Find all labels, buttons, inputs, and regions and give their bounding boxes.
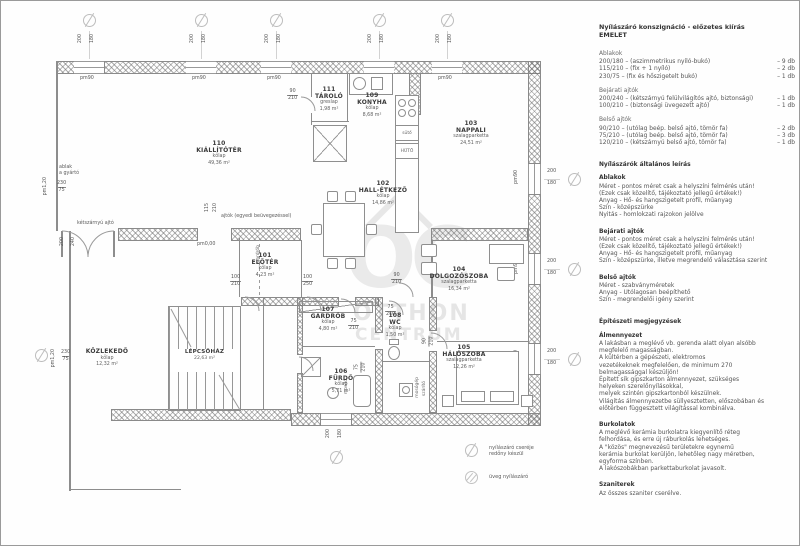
wall-segment	[528, 194, 541, 254]
sink-drainer	[371, 77, 383, 90]
dim-fraction: 23075	[57, 181, 66, 193]
notes-section-ceiling: Álmennyezet A lakásban a meglévő vb. ger…	[599, 333, 795, 413]
level-label: pm0,00	[197, 242, 215, 247]
dim-fraction: 23075	[61, 350, 70, 362]
dim-label: 200	[265, 34, 270, 43]
dim-line	[544, 179, 560, 180]
parapet-label: pm1,20	[43, 177, 48, 195]
floor-plan: OC OTTHON CENTRUM 200 18	[1, 1, 597, 546]
wall-segment	[56, 61, 75, 74]
section-body: A meglévő kerámia burkolatra kiegyenlítő…	[599, 430, 795, 473]
general-section-windows: Ablakok Méret - pontos méret csak a hely…	[599, 175, 795, 219]
dim-label: 200	[78, 34, 83, 43]
stove-burner	[398, 99, 406, 107]
parapet-label: pm90	[514, 170, 519, 184]
stove-burner	[398, 109, 406, 117]
section-body: Méret - pontos méret csak a helyszíni fe…	[599, 237, 795, 266]
stove-burner	[408, 99, 416, 107]
section-body: A lakásban a meglévő vb. gerenda alatt o…	[599, 341, 795, 413]
schedule-row: 75/210 – (utólag beép. belső ajtó, tömör…	[599, 133, 795, 140]
notes-column: Nyílászáró konszignáció - előzetes kiírá…	[599, 23, 795, 507]
wall-segment	[231, 228, 301, 241]
room-label-kiallitoter: 110 KIÁLLÍTÓTÉR kőlap 49,36 m²	[196, 141, 242, 167]
dim-label: 200	[60, 237, 65, 246]
room-label-wc: 108 WC kőlap 1,50 m²	[386, 313, 405, 339]
shutter-legend-icon	[465, 444, 478, 457]
washing-machine-drum	[402, 386, 410, 394]
shutter-icon	[330, 451, 343, 464]
window-glyph	[528, 344, 541, 374]
wall-segment	[215, 61, 262, 74]
general-description-title: Nyílászárók általános leírás	[599, 162, 795, 169]
schedule-row: 120/210 – (kétszárnyú belső ajtó, tömör …	[599, 140, 795, 147]
dim-fraction: 90210	[287, 89, 298, 101]
parapet-label: pm90	[192, 76, 206, 81]
shutter-icon	[83, 14, 96, 27]
partition-line	[69, 489, 181, 490]
room-label-gardrob: 107 GARDRÓB kőlap 4,80 m²	[311, 307, 346, 333]
dim-label: 180	[547, 181, 556, 186]
wall-segment	[528, 61, 541, 164]
schedule-group-interior-doors: Belső ajtók 90/210 – (utólag beép. belső…	[599, 117, 795, 147]
wall-segment	[375, 349, 383, 413]
pillow	[461, 391, 485, 402]
oven-label: sütő	[402, 131, 411, 136]
dim-label: 180	[338, 429, 343, 438]
dim-line	[544, 269, 560, 270]
parapet-label: pm1,20	[51, 349, 56, 367]
notes-section-sanitary: Szaniterek Az összes szaniter cserélve.	[599, 482, 795, 497]
partition-line	[311, 113, 312, 125]
dim-label: 200	[547, 259, 556, 264]
dim-label: 200	[368, 34, 373, 43]
door-label: kétszárnyú ajtó	[77, 221, 114, 227]
wall-segment	[297, 373, 303, 413]
dim-label: 200	[547, 349, 556, 354]
wall-segment	[429, 351, 437, 413]
shutter-icon	[270, 14, 283, 27]
room-label-kozlekedo: KÖZLEKEDŐ kőlap 12,32 m²	[86, 349, 128, 369]
fridge-label: HŰTŐ	[401, 149, 414, 154]
room-label-furdo: 106 FÜRDŐ kőlap 5,71 m²	[329, 369, 354, 395]
partition-line	[263, 297, 264, 409]
dim-label: 200	[190, 34, 195, 43]
washing-machine-label: mosógép	[415, 377, 420, 398]
dim-label: 180	[448, 34, 453, 43]
room-label-nappali: 103 NAPPALI szalagparketta 24,51 m²	[453, 121, 489, 147]
window-glyph	[528, 164, 541, 194]
shower	[301, 357, 321, 377]
dim-label: 200	[326, 429, 331, 438]
partition-line	[437, 341, 528, 342]
window-glyph	[74, 61, 104, 74]
room-label-tarolo: 111 TÁROLÓ greslap 1,98 m²	[315, 87, 343, 113]
room-area: 22,63 m²	[170, 356, 239, 361]
wall-segment	[351, 413, 541, 426]
toilet-tank	[389, 339, 399, 345]
toilet-bowl	[388, 346, 400, 360]
dim-fraction: 90210	[422, 336, 434, 347]
room-label-eloter: 101 ELŐTÉR kőlap 4,23 m²	[251, 253, 278, 279]
opening-label: ajtók (egyedi beüvegezéssel)	[221, 214, 291, 220]
schedule-subtitle: EMELET	[599, 31, 795, 39]
partition-line	[347, 73, 348, 121]
wall-segment	[528, 284, 541, 344]
chair	[366, 224, 377, 235]
dim-label: 200	[547, 169, 556, 174]
nightstand	[521, 395, 533, 407]
door-swing-arc	[301, 97, 315, 111]
dim-label: 180	[380, 34, 385, 43]
window-door-schedule: Ablakok 200/180 – (aszimmetrikus nyíló-b…	[599, 51, 795, 147]
partition-line	[239, 238, 240, 297]
nightstand	[442, 395, 454, 407]
dim-label: 210	[213, 203, 218, 212]
dim-fraction: 90210	[391, 273, 402, 285]
shutter-icon	[195, 14, 208, 27]
dim-label: 240	[71, 237, 76, 246]
notes-section-floorings: Burkolatok A meglévő kerámia burkolatra …	[599, 422, 795, 473]
shutter-icon	[568, 263, 581, 276]
dim-line	[544, 359, 560, 360]
desk-chair	[497, 267, 515, 281]
window-glyph	[321, 413, 351, 426]
legend-glass-label: üveg nyílászáró	[489, 474, 528, 480]
dim-fraction: 75210	[354, 362, 366, 373]
door-swing-arc	[88, 231, 114, 257]
dim-fraction: 100210	[230, 275, 241, 287]
chair	[327, 258, 338, 269]
dim-label: 180	[547, 271, 556, 276]
shutter-icon	[373, 14, 386, 27]
schedule-row: 115/210 – (fix + 1 nyíló)– 2 db	[599, 66, 795, 73]
parapet-label: pm90	[267, 76, 281, 81]
dim-fraction: 100250	[302, 275, 313, 287]
dim-label: 180	[277, 34, 282, 43]
partition-line	[311, 73, 312, 97]
sink-icon	[353, 77, 366, 90]
shutter-icon	[441, 14, 454, 27]
shutter-icon	[568, 353, 581, 366]
chair	[345, 258, 356, 269]
dim-label: 200	[436, 34, 441, 43]
schedule-row: 100/210 – (biztonsági üvegezett ajtó)– 1…	[599, 103, 795, 110]
wall-segment	[375, 297, 383, 333]
partition-line	[303, 346, 375, 347]
room-label-haloszoba: 105 HÁLÓSZOBA szalagparketta 12,26 m²	[442, 345, 485, 371]
room-label-konyha: 109 KONYHA kőlap 8,68 m²	[357, 93, 387, 119]
desk	[489, 244, 524, 264]
dim-label: 180	[547, 361, 556, 366]
chair	[345, 191, 356, 202]
drawing-sheet: OC OTTHON CENTRUM 200 18	[0, 0, 800, 546]
chair	[311, 224, 322, 235]
staircase: LÉPCSŐHÁZ 22,63 m²	[168, 306, 241, 411]
fridge-box: HŰTŐ	[395, 143, 419, 159]
oven-box: sütő	[395, 125, 419, 141]
partition-line	[56, 61, 58, 231]
partition-line	[311, 121, 349, 122]
dim-label: 180	[202, 34, 207, 43]
architectural-notes-title: Építészeti megjegyzések	[599, 319, 795, 326]
shaft	[313, 125, 347, 162]
section-body: Az összes szaniter cserélve.	[599, 491, 795, 498]
window-glyph	[261, 61, 291, 74]
section-body: Méret - pontos méret csak a helyszíni fe…	[599, 184, 795, 220]
window-glyph	[432, 61, 462, 74]
schedule-title: Nyílászáró konszignáció - előzetes kiírá…	[599, 23, 795, 31]
room-name: LÉPCSŐHÁZ	[170, 349, 239, 356]
partition-line	[301, 240, 302, 297]
parapet-label: pm90	[80, 76, 94, 81]
chair	[327, 191, 338, 202]
window-note: ablak a gyártó	[59, 165, 79, 176]
wall-segment	[118, 228, 198, 241]
shutter-icon	[35, 349, 48, 362]
wall-segment	[431, 228, 528, 241]
glass-legend-icon	[465, 471, 478, 484]
pillow	[490, 391, 514, 402]
room-label-dolgozoszoba: 104 DOLGOZÓSZOBA szalagparketta 16,34 m²	[430, 267, 489, 293]
window-glyph	[186, 61, 216, 74]
armchair	[421, 244, 437, 257]
schedule-group-entry-doors: Bejárati ajtók 200/240 – (kétszárnyú fel…	[599, 88, 795, 111]
partition-line	[383, 361, 429, 362]
stair-landing: LÉPCSŐHÁZ 22,63 m²	[170, 349, 239, 372]
general-section-interior-doors: Belső ajtók Méret - szabványméretek Anya…	[599, 275, 795, 305]
wall-segment	[429, 297, 437, 331]
parapet-label: pm90	[438, 76, 452, 81]
wall-segment	[104, 61, 187, 74]
shutter-icon	[568, 173, 581, 186]
dim-fraction: 75210	[348, 319, 359, 331]
section-body: Méret - szabványméretek Anyag - Utólagos…	[599, 283, 795, 305]
dim-label: 115	[205, 203, 210, 212]
dining-table	[323, 203, 365, 257]
legend-shutter-label: nyílászáró cseréje redőny készül	[489, 445, 534, 457]
dim-label: 180	[90, 34, 95, 43]
bathtub	[353, 375, 371, 407]
schedule-group-windows: Ablakok 200/180 – (aszimmetrikus nyíló-b…	[599, 51, 795, 81]
room-label-hall-etkezo: 102 HALL-ÉTKEZŐ kőlap 14,86 m²	[359, 181, 407, 207]
dryer-label: szárító	[422, 381, 427, 396]
schedule-row: 90/210 – (utólag beép. belső ajtó, tömör…	[599, 126, 795, 133]
general-section-entry-doors: Bejárati ajtók Méret - pontos méret csak…	[599, 229, 795, 266]
wall-segment	[291, 413, 321, 426]
window-glyph	[528, 254, 541, 284]
stove-burner	[408, 109, 416, 117]
schedule-row: 230/75 – (fix és hőszigetelt bukó)– 1 db	[599, 74, 795, 81]
door-swing-arc	[245, 297, 259, 311]
